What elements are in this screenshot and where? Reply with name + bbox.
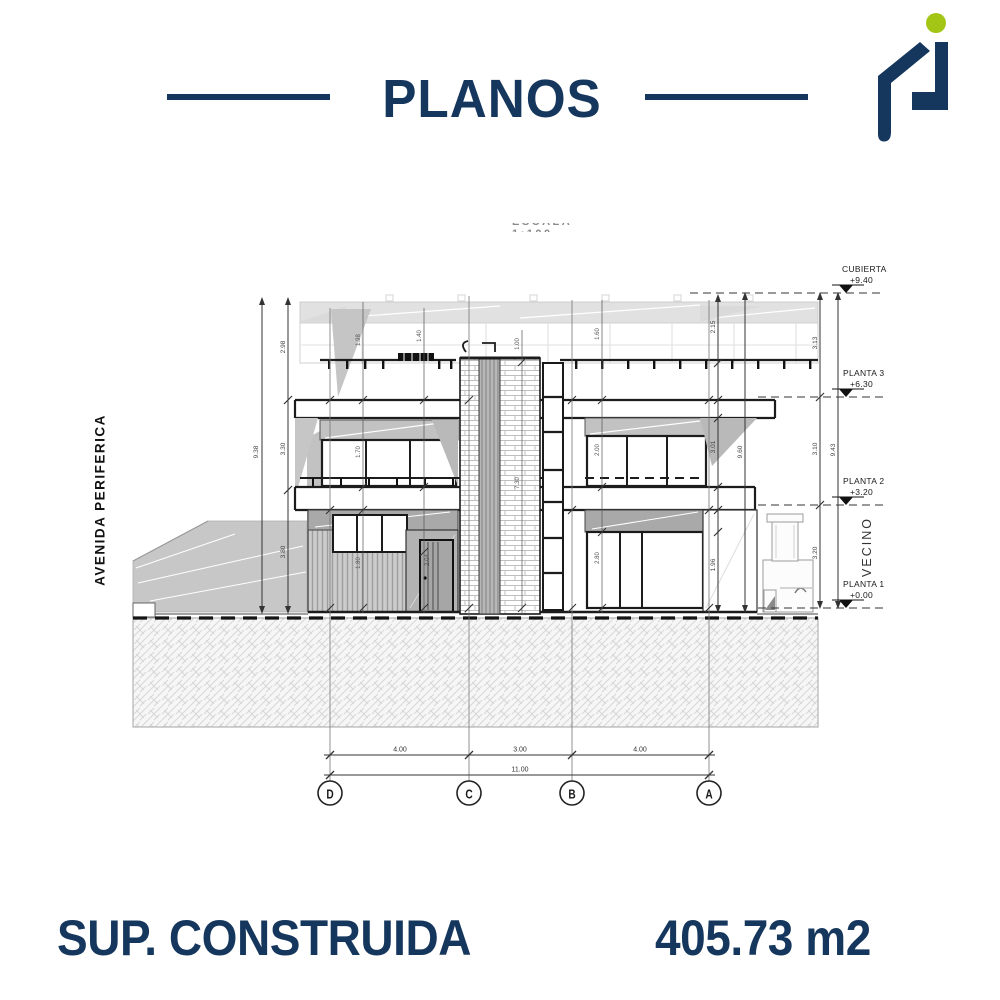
- level-name-planta1: PLANTA 1: [843, 580, 884, 589]
- left-dim-seg2: 3.30: [281, 443, 288, 456]
- interior-dim-0: 1.98: [356, 334, 362, 346]
- interior-dim-4: 1.70: [356, 446, 362, 458]
- dim-ba: 4.00: [633, 747, 647, 754]
- building-facade: [295, 341, 818, 614]
- built-area-value: 405.73 m2: [655, 913, 871, 963]
- grid-axis-d: D: [326, 788, 333, 801]
- right-dim1-seg1: 2.15: [711, 321, 718, 334]
- scale-caption: ESCALA 1:100: [512, 223, 616, 232]
- interior-dim-1: 1.40: [417, 330, 423, 342]
- interior-dim-2: 1.00: [515, 338, 521, 350]
- dim-cb: 3.00: [513, 747, 527, 754]
- right-dim2-total: 9.60: [738, 446, 745, 459]
- interior-dim-5: 2.00: [595, 444, 601, 456]
- interior-dim-3: 1.60: [595, 328, 601, 340]
- neighbor-structure: [763, 514, 813, 612]
- left-dim-seg1: 2.98: [281, 341, 288, 354]
- street-label: AVENIDA PERIFERICA: [93, 414, 107, 586]
- right-dim1-seg2: 3.01: [711, 441, 718, 454]
- level-elev-planta3: +6.30: [850, 380, 873, 389]
- interior-dim-9: 2.80: [595, 552, 601, 564]
- right-dim4-total: 9.43: [831, 444, 838, 457]
- interior-dim-8: 2.04: [425, 554, 431, 566]
- right-dim3-seg1: 3.13: [813, 337, 820, 350]
- right-dim3-seg2: 3.10: [813, 443, 820, 456]
- grid-axis-a: A: [705, 788, 712, 801]
- interior-dim-6: 7.30: [515, 477, 521, 489]
- level-name-cubierta: CUBIERTA: [842, 265, 887, 274]
- level-elev-cubierta: +9.40: [850, 276, 873, 285]
- level-name-planta3: PLANTA 3: [843, 369, 884, 378]
- plan-card: PLANOS: [0, 0, 1000, 1000]
- left-dim-total: 9.38: [254, 446, 261, 459]
- neighbor-label: VECINO: [861, 517, 874, 577]
- grid-axis-b: B: [568, 788, 575, 801]
- bottom-dimensions: [318, 751, 721, 805]
- level-elev-planta2: +3.20: [850, 488, 873, 497]
- built-area-label: SUP. CONSTRUIDA: [57, 913, 471, 963]
- left-dim-seg3: 3.80: [281, 546, 288, 559]
- level-name-planta2: PLANTA 2: [843, 477, 884, 486]
- level-elev-planta1: +0.00: [850, 591, 873, 600]
- penthouse-level: [300, 295, 818, 363]
- ground-band: [133, 614, 818, 727]
- right-dim1-seg3: 1.96: [711, 559, 718, 572]
- dim-total: 11.00: [512, 767, 529, 774]
- right-dim3-seg3: 3.20: [813, 547, 820, 560]
- interior-dim-7: 1.80: [356, 557, 362, 569]
- grid-axis-c: C: [465, 788, 472, 801]
- dim-dc: 4.00: [393, 747, 407, 754]
- elevation-drawing: [0, 0, 1000, 1000]
